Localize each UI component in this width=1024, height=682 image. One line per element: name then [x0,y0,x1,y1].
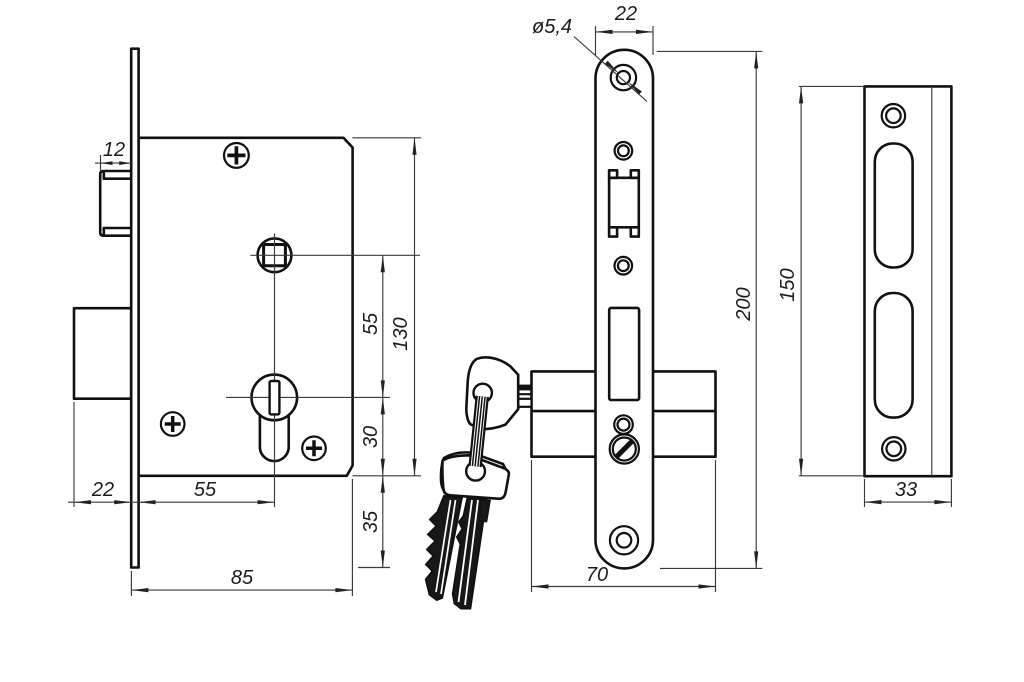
svg-text:30: 30 [360,426,382,448]
svg-text:22: 22 [91,479,114,501]
svg-text:130: 130 [390,317,412,350]
svg-text:ø5,4: ø5,4 [532,16,572,38]
svg-text:150: 150 [777,268,799,301]
svg-text:33: 33 [895,479,917,501]
svg-text:22: 22 [614,3,637,25]
svg-text:35: 35 [360,510,382,533]
svg-text:200: 200 [733,287,755,321]
svg-text:55: 55 [194,479,217,501]
svg-text:85: 85 [231,567,254,589]
svg-text:70: 70 [586,564,608,586]
svg-text:55: 55 [360,312,382,335]
svg-text:12: 12 [103,139,125,161]
